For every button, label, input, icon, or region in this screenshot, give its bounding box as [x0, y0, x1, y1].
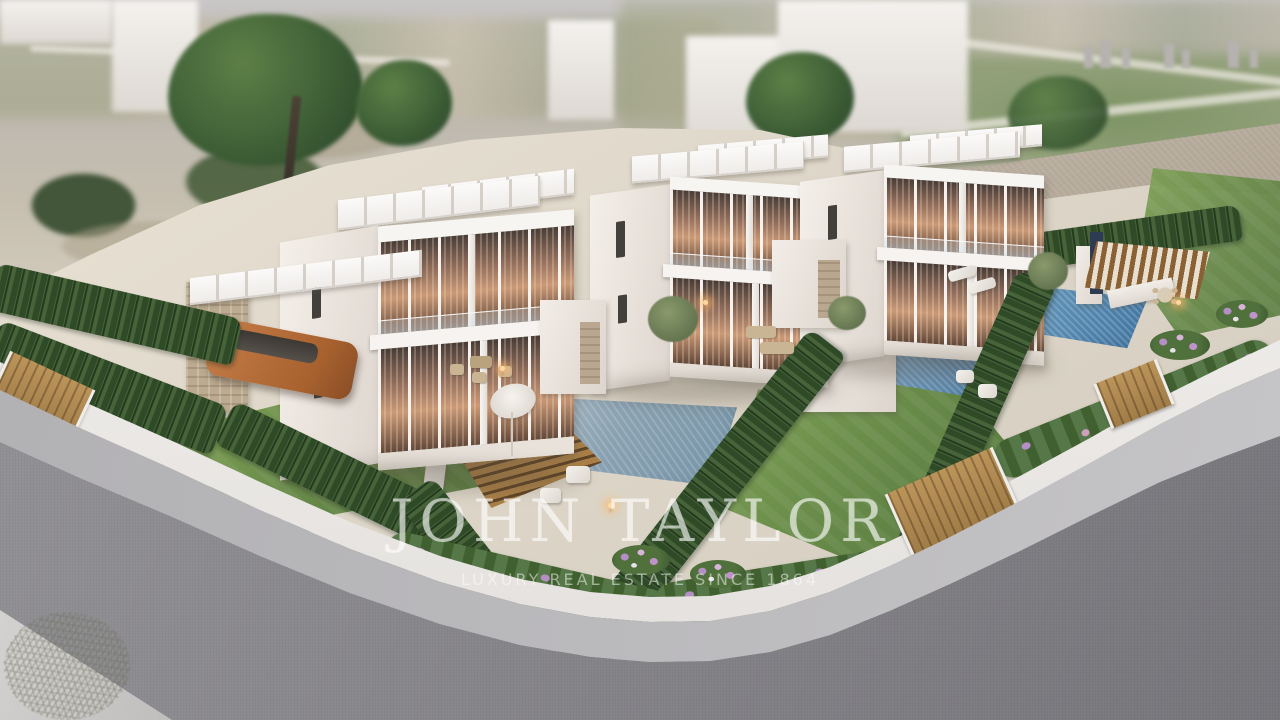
entrance-annex	[540, 300, 606, 394]
olive-tree	[648, 296, 698, 342]
terrace-table	[470, 356, 492, 368]
terrace-sofa	[760, 342, 794, 354]
distant-skyline	[1078, 36, 1278, 70]
flower-bush	[1150, 330, 1210, 360]
tree-canopy	[168, 14, 363, 166]
far-building	[0, 0, 112, 44]
olive-tree	[828, 296, 866, 330]
path-light	[1176, 300, 1181, 305]
brand-tagline: LUXURY REAL ESTATE SINCE 1864	[0, 570, 1280, 589]
tree-canopy	[356, 60, 452, 146]
brand-wordmark: JOHN TAYLOR	[0, 492, 1280, 550]
terrace-chair	[472, 372, 486, 383]
terrace-sofa	[746, 326, 776, 338]
olive-tree	[1028, 252, 1068, 290]
aerial-villa-render: JOHN TAYLOR LUXURY REAL ESTATE SINCE 186…	[0, 0, 1280, 720]
pouf	[978, 384, 997, 398]
path-light	[500, 366, 505, 371]
car-windshield	[231, 328, 319, 364]
window-band-upper	[884, 177, 1044, 258]
pouf	[566, 466, 590, 483]
parasol-pole	[511, 412, 513, 456]
path-light	[703, 300, 708, 305]
dry-shrub	[4, 612, 130, 720]
flower-bush	[1216, 300, 1268, 328]
pouf	[956, 370, 974, 383]
terrace-chair	[450, 364, 464, 375]
